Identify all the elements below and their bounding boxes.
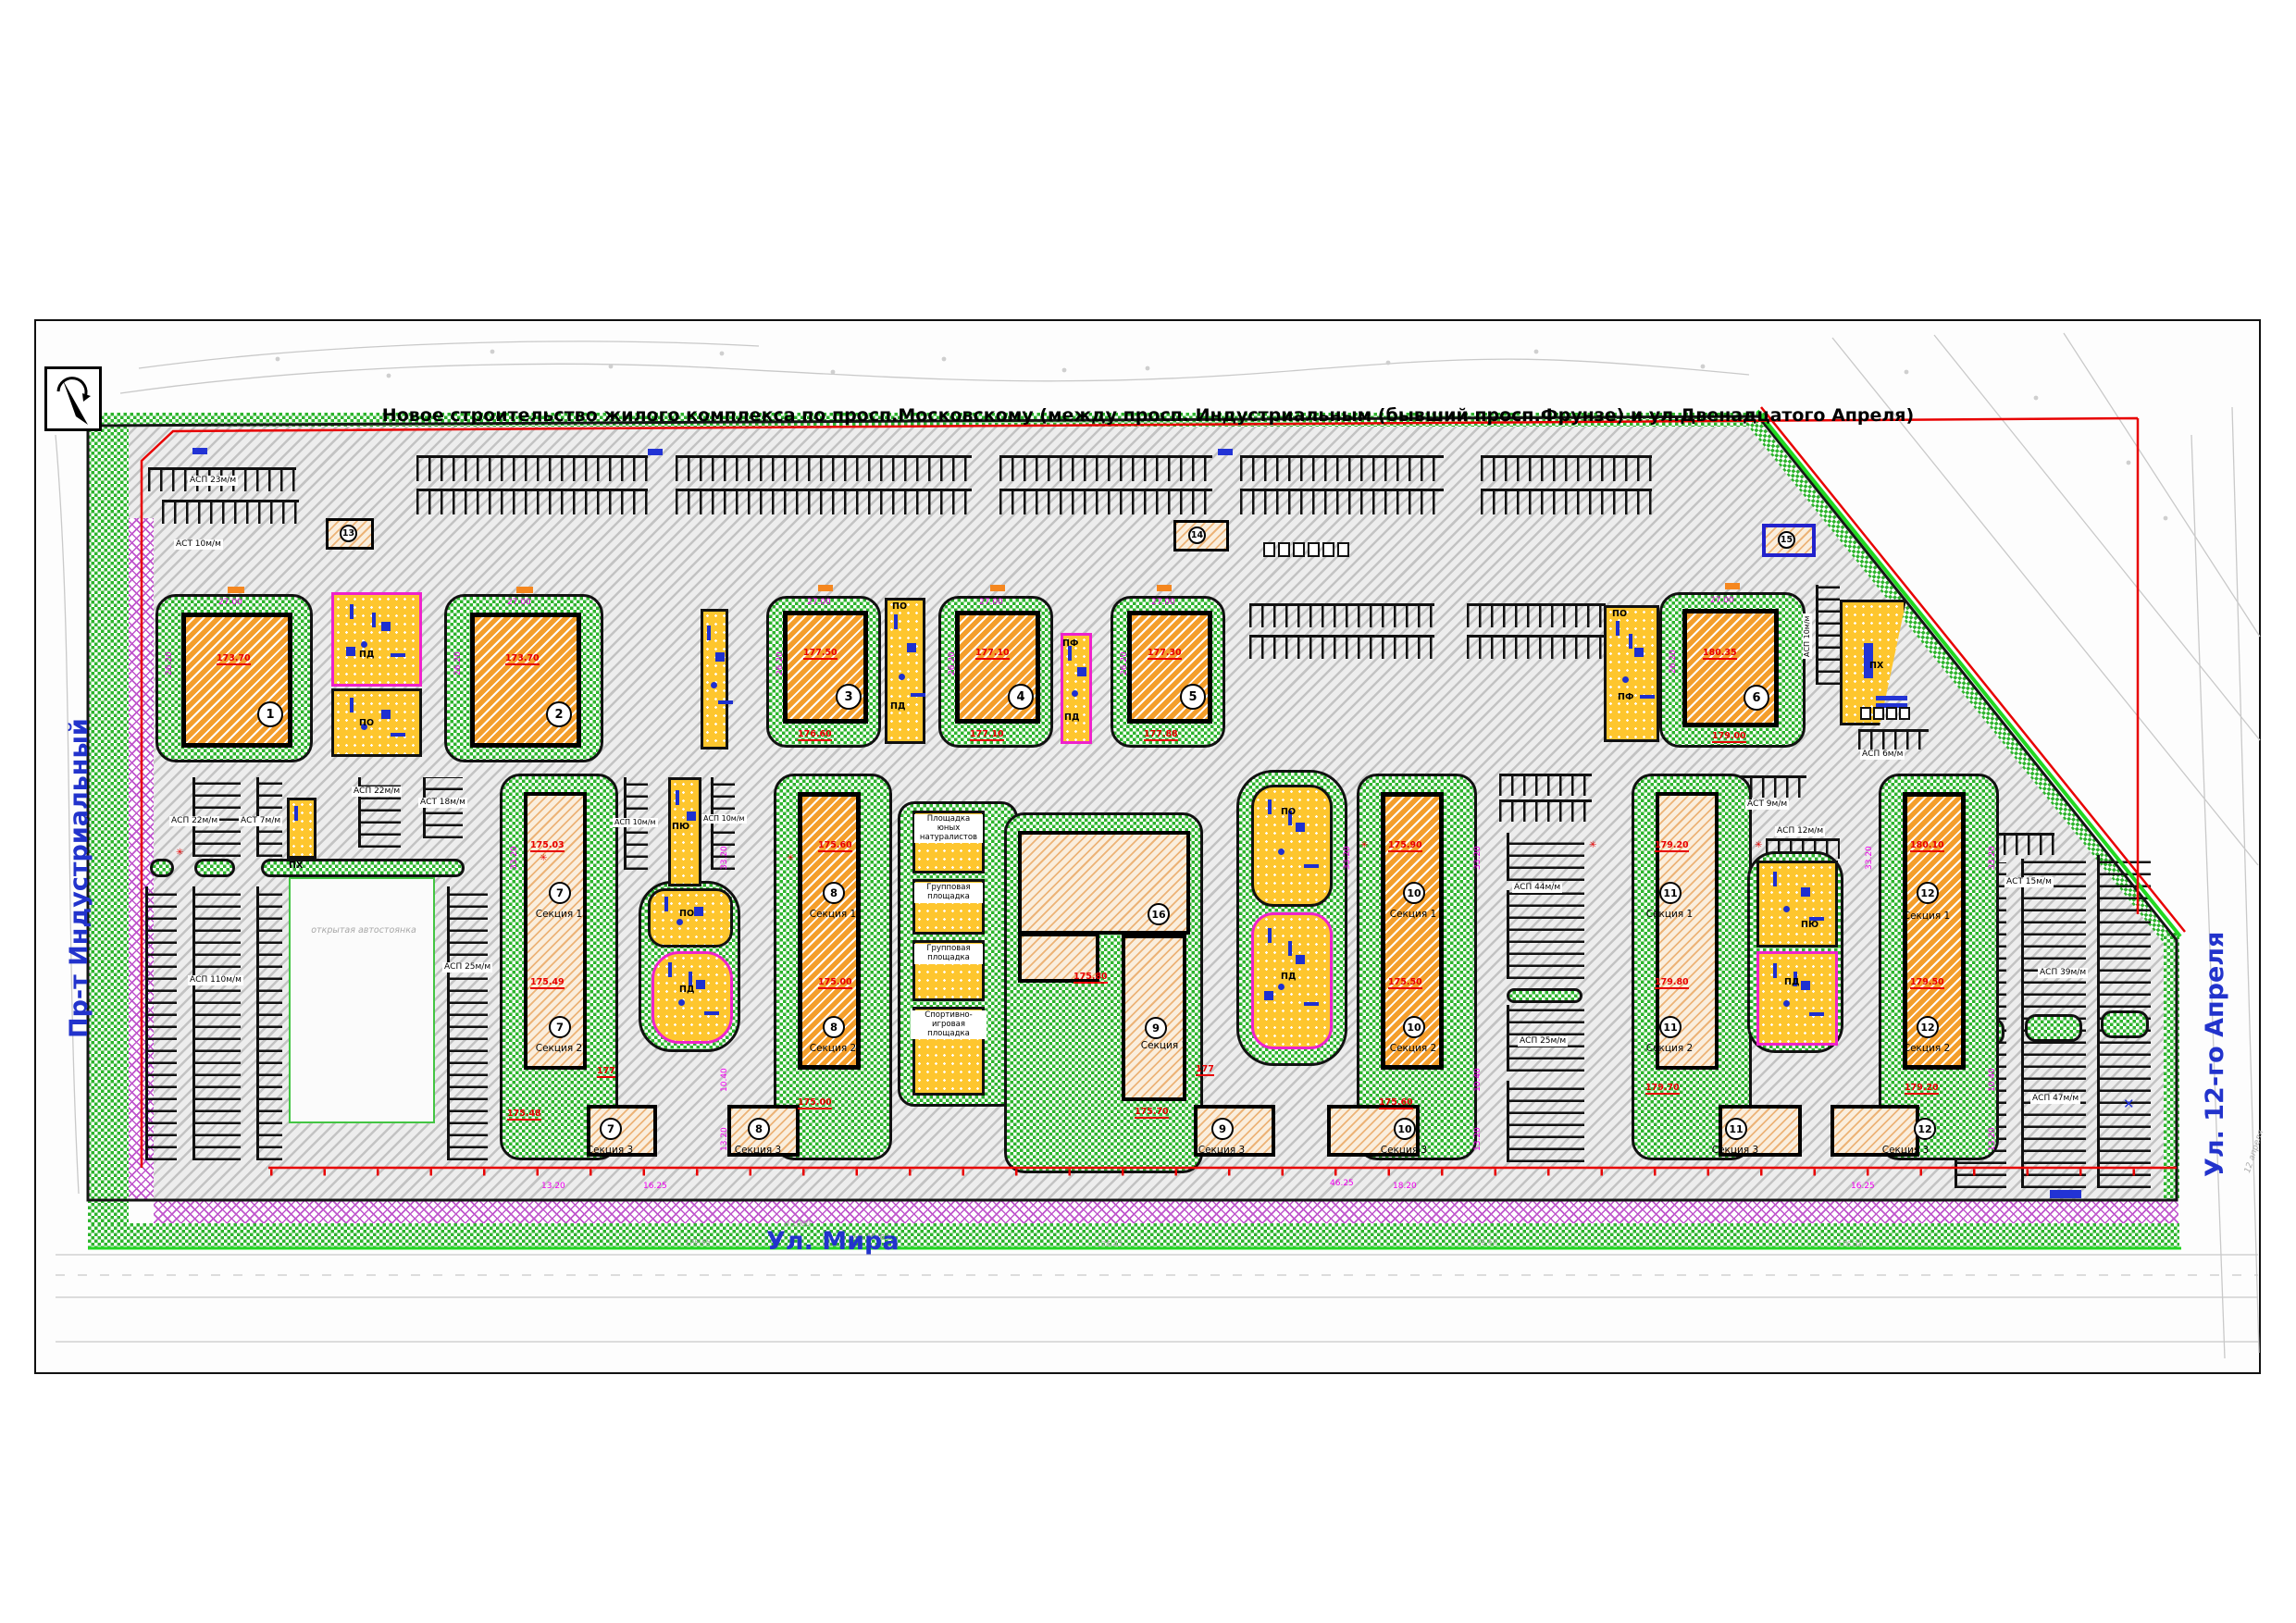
- playground-equipment-icon: [1072, 690, 1078, 697]
- section-label: Секция 2: [1636, 1043, 1703, 1054]
- playground-equipment-icon: [1268, 799, 1272, 814]
- building-number-11: 11: [1659, 1016, 1682, 1038]
- building-number-13: 13: [340, 525, 357, 542]
- elevation-mark: 173.70: [217, 653, 251, 665]
- parking-row: [1249, 635, 1434, 659]
- text-label: ПО: [892, 601, 907, 612]
- playground-equipment-icon: [1634, 648, 1644, 657]
- building-number-12: 12: [1917, 882, 1939, 904]
- section-label: Секция 2: [1380, 1043, 1446, 1054]
- orange-marker: [1157, 585, 1172, 591]
- elevation-mark: 177.50: [803, 648, 838, 660]
- text-label: ПО: [1612, 609, 1627, 619]
- text-label: 176.43: [1097, 1240, 1123, 1248]
- elevation-mark: 175.00: [798, 1097, 832, 1109]
- section-label: Секция 3: [725, 1145, 791, 1156]
- orange-marker: [516, 587, 533, 593]
- building-number-7: 7: [549, 1016, 571, 1038]
- parking-capacity-label: АСП 110м/м: [188, 975, 243, 985]
- trash-container: [1899, 707, 1910, 720]
- elevation-mark: 175.70: [1135, 1107, 1169, 1119]
- dimension-label: 13.20: [1988, 1127, 1997, 1151]
- elevation-mark: 177.30: [1148, 648, 1182, 660]
- building-number-9: 9: [1211, 1118, 1234, 1140]
- building-1: [181, 613, 292, 748]
- playground-equipment-icon: [715, 652, 725, 662]
- building-number-7: 7: [600, 1118, 622, 1140]
- text-label: ПО: [1281, 807, 1296, 817]
- area-label: Групповая площадка: [914, 944, 983, 964]
- parking-capacity-label: АСП 39м/м: [2038, 968, 2088, 978]
- dimension-label: 33.20: [720, 846, 729, 870]
- parking-row: [1507, 833, 1584, 881]
- parking-row: [999, 455, 1212, 481]
- playground: [1756, 951, 1838, 1046]
- dimension-label: 16.25: [1851, 1182, 1875, 1191]
- blue-marker: [1876, 696, 1907, 700]
- elevation-mark: 175.80: [1074, 972, 1108, 984]
- text-label: ✳: [1589, 840, 1596, 850]
- dimension-label: 27.00: [507, 598, 531, 607]
- text-label: ✳: [1360, 840, 1368, 850]
- building-6: [1682, 609, 1779, 727]
- dimension-label: 16.25: [643, 1182, 667, 1191]
- trash-container: [1293, 542, 1305, 557]
- green-island: [2025, 1014, 2082, 1042]
- playground-equipment-icon: [1640, 695, 1655, 699]
- trash-container: [1337, 542, 1349, 557]
- site-plan-sheet: АСП 23м/мАСТ 10м/мАСП 22м/мАСТ 7м/мАСП 2…: [0, 0, 2296, 1623]
- text-label: ПО: [679, 909, 694, 919]
- playground-equipment-icon: [1629, 634, 1632, 649]
- text-label: ПЮ: [672, 822, 689, 832]
- playground-equipment-icon: [350, 604, 354, 619]
- building-number-1: 1: [257, 701, 283, 727]
- playground-equipment-icon: [1304, 1002, 1319, 1006]
- building-number-9: 9: [1145, 1017, 1167, 1039]
- building-number-5: 5: [1180, 684, 1206, 710]
- playground-equipment-icon: [361, 641, 367, 648]
- parking-capacity-label: АСТ 15м/м: [2004, 877, 2054, 887]
- elevation-mark: 175.03: [530, 840, 565, 852]
- playground: [668, 777, 701, 886]
- playground-equipment-icon: [1801, 887, 1810, 897]
- building-number-12: 12: [1914, 1118, 1936, 1140]
- elevation-mark: 180.35: [1703, 648, 1737, 660]
- building-2: [470, 613, 581, 748]
- dimension-label: 33.20: [1473, 846, 1483, 870]
- elevation-mark: 177: [597, 1066, 615, 1078]
- dimension-label: 13.20: [541, 1182, 565, 1191]
- text-label: открытая автостоянка: [294, 925, 433, 935]
- playground: [701, 609, 728, 750]
- playground-equipment-icon: [678, 999, 685, 1006]
- playground-equipment-icon: [1278, 849, 1285, 855]
- section-label: Секция 2: [800, 1043, 866, 1054]
- parking-capacity-label: АСТ 10м/м: [174, 539, 223, 550]
- playground-equipment-icon: [704, 1011, 719, 1015]
- dimension-label: 18.20: [1393, 1182, 1417, 1191]
- playground-equipment-icon: [668, 962, 672, 977]
- playground: [1061, 633, 1092, 744]
- parking-row: [162, 500, 299, 524]
- parking-capacity-label: АСП 22м/м: [169, 816, 219, 826]
- parking-row: [999, 489, 1212, 514]
- text-label: ✳: [176, 848, 183, 858]
- dimension-label: 13.20: [720, 1127, 729, 1151]
- parking-row: [1240, 455, 1444, 481]
- building-number-14: 14: [1188, 527, 1206, 544]
- dimension-label: 13.20: [1473, 1127, 1483, 1151]
- text-label: 176.38: [1837, 1240, 1863, 1248]
- text-label: ПХ: [1869, 661, 1883, 671]
- orange-marker: [990, 585, 1005, 591]
- section-label: Секция 1: [800, 909, 866, 920]
- parking-capacity-label: АСП 10м/м: [701, 814, 747, 824]
- elevation-mark: 177.10: [970, 729, 1004, 741]
- playground: [885, 598, 925, 744]
- lawn-strip-left: [88, 413, 129, 1249]
- parking-row: [1481, 489, 1652, 514]
- playground-equipment-icon: [1783, 1000, 1790, 1007]
- playground: [1604, 605, 1659, 742]
- parking-capacity-label: АСП 25м/м: [1518, 1036, 1568, 1047]
- text-label: ПД: [359, 650, 374, 660]
- dimension-label: 27.00: [218, 598, 242, 607]
- dimension-label: 26.20: [165, 651, 174, 675]
- parking-row: [1499, 799, 1592, 822]
- text-label: 12 апреля: [2243, 1129, 2265, 1174]
- playground-equipment-icon: [1622, 676, 1629, 683]
- playground-equipment-icon: [1264, 991, 1273, 1000]
- text-label: ПД: [1064, 712, 1079, 723]
- text-label: ПФ: [1618, 692, 1633, 702]
- dimension-label: 33.20: [1343, 846, 1352, 870]
- elevation-mark: 180.10: [1910, 840, 1944, 852]
- orange-marker: [1725, 583, 1740, 589]
- north-arrow-icon: [44, 366, 102, 431]
- parking-capacity-label: АСП 22м/м: [352, 787, 402, 797]
- building-number-2: 2: [546, 701, 572, 727]
- elevation-mark: 175.60: [818, 840, 852, 852]
- dimension-label: 27.00: [979, 598, 1003, 607]
- parking-row: [192, 886, 241, 1160]
- elevation-mark: 175.90: [1388, 840, 1422, 852]
- trash-container: [1873, 707, 1884, 720]
- building-number-10: 10: [1403, 882, 1425, 904]
- playground: [652, 951, 733, 1044]
- text-label: ✳: [787, 853, 794, 863]
- playground-equipment-icon: [1801, 981, 1810, 990]
- elevation-mark: 175.60: [1379, 1097, 1413, 1109]
- section-label: Секция 1: [1893, 911, 1960, 922]
- dimension-label: 27.00: [807, 598, 831, 607]
- playground-equipment-icon: [350, 698, 354, 712]
- street-label-left: Пр-т Индустриальный: [65, 718, 93, 1038]
- parking-row: [676, 489, 972, 514]
- dimension-label: 27.00: [1151, 598, 1175, 607]
- trash-container: [1886, 707, 1897, 720]
- parking-capacity-label: АСТ 18м/м: [418, 798, 467, 808]
- lawn-strip-right: [2164, 933, 2179, 1201]
- blue-marker: [2050, 1190, 2081, 1198]
- area-label: Площадка юных натуралистов: [914, 814, 983, 843]
- building-number-11: 11: [1725, 1118, 1747, 1140]
- playground-equipment-icon: [1296, 955, 1305, 964]
- parking-capacity-label: АСТ 7м/м: [239, 816, 282, 826]
- parking-row: [1240, 489, 1444, 514]
- text-label: ПД: [679, 985, 694, 995]
- elevation-mark: 179.00: [1712, 731, 1746, 743]
- dimension-label: 26.20: [453, 651, 463, 675]
- building-number-6: 6: [1744, 685, 1769, 711]
- playground-equipment-icon: [294, 806, 298, 821]
- dimension-label: 26.20: [1669, 650, 1678, 674]
- open-parking-lot: [289, 877, 435, 1123]
- parking-row: [1499, 774, 1592, 796]
- elevation-mark: 177.10: [975, 648, 1010, 660]
- green-island: [1507, 988, 1582, 1003]
- building-number-11: 11: [1659, 882, 1682, 904]
- dimension-label: 10.40: [1988, 1068, 1997, 1092]
- playground-equipment-icon: [381, 622, 391, 631]
- section-label: Секция 2: [526, 1043, 592, 1054]
- playground-equipment-icon: [694, 907, 703, 916]
- playground-equipment-icon: [907, 643, 916, 652]
- playground-equipment-icon: [1288, 941, 1292, 956]
- parking-capacity-label: АСП 25м/м: [442, 962, 492, 973]
- section-label: Секция 3: [1702, 1145, 1769, 1156]
- green-island: [2101, 1010, 2149, 1038]
- trash-container: [1322, 542, 1334, 557]
- text-label: ПО: [359, 718, 374, 728]
- elevation-mark: 173.70: [505, 653, 540, 665]
- trash-container: [1308, 542, 1320, 557]
- playground-equipment-icon: [391, 733, 405, 737]
- parking-row: [1507, 890, 1584, 979]
- text-label: ПХ: [289, 861, 303, 871]
- parking-capacity-label: АСП 12м/м: [1775, 826, 1825, 836]
- trash-container: [1278, 542, 1290, 557]
- green-island: [194, 859, 235, 877]
- parking-capacity-label: АСТ 9м/м: [1745, 799, 1789, 810]
- building-number-4: 4: [1008, 684, 1034, 710]
- playground-equipment-icon: [381, 710, 391, 719]
- street-label-bottom: Ул. Мира: [766, 1227, 900, 1256]
- street-label-right: Ул. 12-го Апреля: [2201, 932, 2229, 1177]
- dimension-label: 33.20: [510, 846, 519, 870]
- building-number-10: 10: [1394, 1118, 1416, 1140]
- section-label: Секция 1: [1636, 909, 1703, 920]
- building-number-12: 12: [1917, 1016, 1939, 1038]
- parking-row: [1858, 729, 1929, 750]
- playground-equipment-icon: [894, 614, 898, 629]
- playground-equipment-icon: [718, 700, 733, 704]
- section-label: Секция 1: [526, 909, 592, 920]
- section-label: Секция 1: [1131, 1040, 1198, 1051]
- playground-equipment-icon: [911, 693, 925, 697]
- building-number-16: 16: [1148, 903, 1170, 925]
- text-label: ПЮ: [1801, 920, 1818, 930]
- orange-marker: [228, 587, 244, 593]
- elevation-mark: 175.48: [507, 1109, 541, 1121]
- elevation-mark: 177.88: [1144, 729, 1178, 741]
- elevation-mark: 179.20: [1655, 840, 1689, 852]
- dimension-label: 46.25: [1330, 1179, 1354, 1188]
- text-label: ✳: [1755, 840, 1762, 850]
- playground-equipment-icon: [696, 980, 705, 989]
- parking-row: [1507, 1081, 1584, 1162]
- green-island: [150, 859, 174, 877]
- parking-row: [1816, 585, 1840, 685]
- parking-row: [676, 455, 972, 481]
- building-number-15: 15: [1778, 531, 1795, 549]
- elevation-mark: 177: [1196, 1064, 1214, 1076]
- playground-equipment-icon: [1077, 667, 1086, 676]
- blue-marker: [648, 449, 663, 455]
- playground-equipment-icon: [687, 811, 696, 821]
- text-label: ПД: [1784, 977, 1799, 987]
- playground: [1756, 861, 1838, 948]
- elevation-mark: 175.50: [1388, 977, 1422, 989]
- playground-equipment-icon: [391, 653, 405, 657]
- playground-equipment-icon: [676, 919, 683, 925]
- building-number-8: 8: [823, 1016, 845, 1038]
- trash-container: [1860, 707, 1871, 720]
- playground-equipment-icon: [1268, 928, 1272, 943]
- parking-row: [1481, 455, 1652, 481]
- area-label: Спортивно-игровая площадка: [911, 1010, 987, 1039]
- text-label: 176.61: [1471, 1238, 1497, 1246]
- playground: [1251, 785, 1333, 907]
- orange-marker: [818, 585, 833, 591]
- blue-marker: [1218, 449, 1233, 455]
- playground-equipment-icon: [1296, 823, 1305, 832]
- playground-equipment-icon: [1783, 906, 1790, 912]
- building-number-7: 7: [549, 882, 571, 904]
- playground-equipment-icon: [346, 647, 355, 656]
- text-label: ✕: [2123, 1096, 2135, 1112]
- dimension-label: 27.00: [1710, 596, 1734, 605]
- playground: [331, 688, 422, 757]
- lawn-strip-bottom: [88, 1223, 2179, 1249]
- playground-equipment-icon: [711, 682, 717, 688]
- building-number-8: 8: [823, 882, 845, 904]
- sports-court: [287, 798, 316, 859]
- section-label: Секция 3: [1188, 1145, 1255, 1156]
- parking-row: [1467, 635, 1606, 659]
- parking-capacity-label: АСП 47м/м: [2030, 1094, 2080, 1104]
- text-label: ПД: [1281, 972, 1296, 982]
- parking-row: [416, 455, 648, 481]
- section-label: Секция 1: [1380, 909, 1446, 920]
- dimension-label: 33.20: [1865, 846, 1874, 870]
- dimension-label: 33.20: [1988, 846, 1997, 870]
- parking-row: [256, 886, 282, 1160]
- playground-equipment-icon: [664, 897, 668, 911]
- parking-row: [1249, 603, 1434, 627]
- section-label: Секция 2: [1893, 1043, 1960, 1054]
- dimension-label: 10.40: [720, 1068, 729, 1092]
- sheet-title: Новое строительство жилого комплекса по …: [382, 405, 1914, 426]
- playground: [331, 592, 422, 687]
- playground-equipment-icon: [1616, 621, 1620, 636]
- building-number-8: 8: [748, 1118, 770, 1140]
- blue-marker: [192, 448, 207, 454]
- dimension-label: 26.20: [1120, 651, 1129, 675]
- elevation-mark: 179.20: [1905, 1083, 1939, 1095]
- text-label: ПФ: [1062, 638, 1078, 649]
- playground-equipment-icon: [1278, 984, 1285, 990]
- section-label: Секция 3: [577, 1145, 643, 1156]
- parking-capacity-label: АСП 10м/м: [613, 818, 658, 827]
- building-number-10: 10: [1403, 1016, 1425, 1038]
- trash-container: [1263, 542, 1275, 557]
- parking-capacity-label: АСП 44м/м: [1512, 883, 1562, 893]
- section-label: Секция 3: [1872, 1145, 1939, 1156]
- text-label: ПД: [890, 701, 905, 712]
- elevation-mark: 179.80: [1655, 977, 1689, 989]
- parking-row: [447, 886, 488, 1160]
- dimension-label: 10.40: [1473, 1068, 1483, 1092]
- playground-equipment-icon: [1304, 864, 1319, 868]
- text-label: 176.65: [685, 1238, 711, 1246]
- section-label: Секция 3: [1371, 1145, 1437, 1156]
- parking-capacity-label: АСП 23м/м: [188, 476, 238, 486]
- playground-equipment-icon: [1809, 1012, 1824, 1016]
- elevation-mark: 175.49: [530, 977, 565, 989]
- parking-row: [145, 886, 177, 1160]
- elevation-mark: 179.50: [1910, 977, 1944, 989]
- sidewalk-bottom: [154, 1199, 2178, 1224]
- parking-row: [1467, 603, 1606, 627]
- parking-capacity-label: АСП 10м/м: [1803, 613, 1812, 659]
- parking-row: [416, 489, 648, 514]
- area-label: Групповая площадка: [914, 883, 983, 903]
- text-label: ✳: [540, 853, 547, 863]
- elevation-mark: 179.70: [1645, 1083, 1680, 1095]
- playground-equipment-icon: [676, 790, 679, 805]
- elevation-mark: 176.60: [798, 729, 832, 741]
- parking-capacity-label: АСП 6м/м: [1860, 750, 1905, 760]
- playground-equipment-icon: [1773, 872, 1777, 886]
- playground-equipment-icon: [372, 613, 376, 627]
- playground-equipment-icon: [707, 626, 711, 640]
- elevation-mark: 175.00: [818, 977, 852, 989]
- building-number-3: 3: [836, 684, 862, 710]
- playground-equipment-icon: [899, 674, 905, 680]
- dimension-label: 26.20: [776, 651, 785, 675]
- dimension-label: 26.20: [948, 651, 957, 675]
- playground-equipment-icon: [1773, 963, 1777, 978]
